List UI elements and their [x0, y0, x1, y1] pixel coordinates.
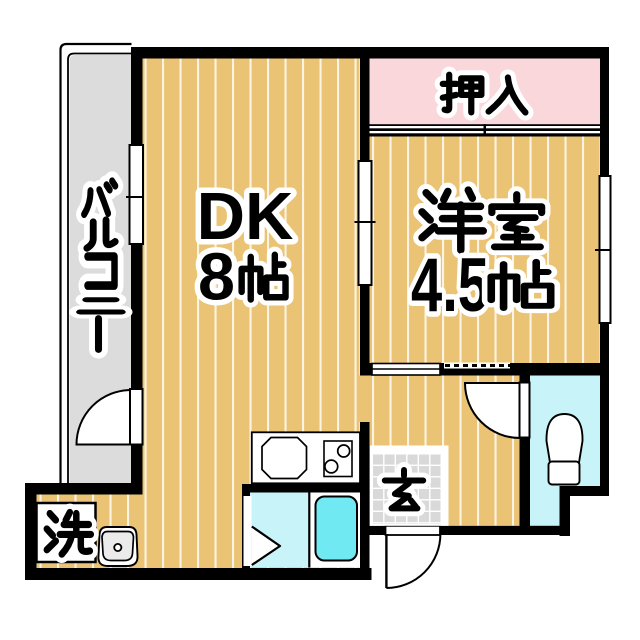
- svg-text:4.5: 4.5: [411, 243, 489, 328]
- svg-text:8: 8: [198, 241, 235, 315]
